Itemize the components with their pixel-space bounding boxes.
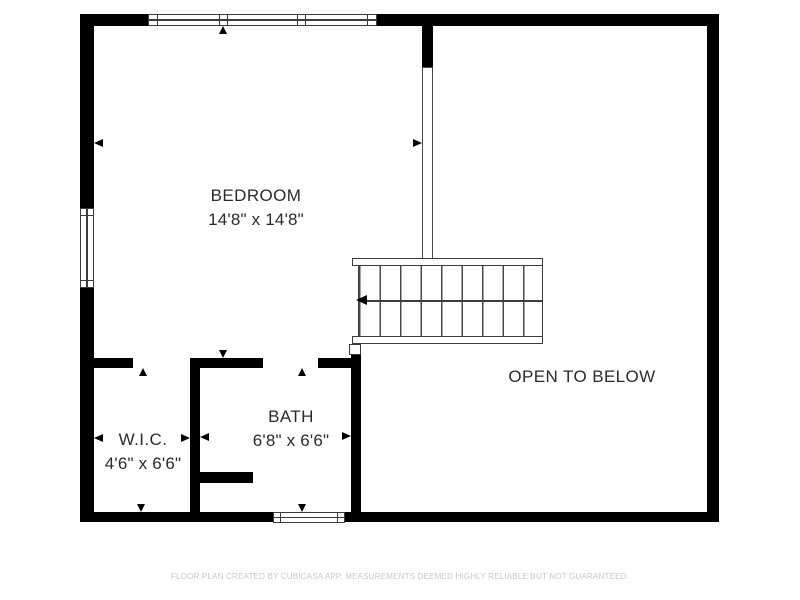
- wall-bath-stub: [200, 472, 253, 483]
- room-label-open-to-below: OPEN TO BELOW: [508, 365, 655, 389]
- window-frame-line: [280, 513, 281, 522]
- wall-bath-top-left: [190, 358, 263, 368]
- window-left: [80, 208, 94, 288]
- stair-railing: [422, 67, 433, 259]
- window-frame-line: [81, 280, 93, 281]
- wic-dim-arrow-bottom-icon: [137, 504, 145, 512]
- floor-plan: BEDROOM 14'8" x 14'8" W.I.C. 4'6" x 6'6"…: [0, 0, 800, 600]
- room-label-wic: W.I.C. 4'6" x 6'6": [105, 428, 182, 476]
- wall-left-upper-segment: [80, 14, 94, 208]
- wall-right: [707, 14, 719, 522]
- bedroom-dim-arrow-top-icon: [219, 26, 227, 34]
- room-label-bath: BATH 6'8" x 6'6": [253, 405, 330, 453]
- window-frame-line: [227, 15, 228, 25]
- wic-dimensions: 4'6" x 6'6": [105, 452, 182, 476]
- bedroom-dim-arrow-right-icon: [413, 139, 422, 147]
- stair-direction-arrow-icon: [356, 295, 367, 305]
- window-frame-line: [367, 15, 368, 25]
- bath-dim-arrow-right-icon: [342, 432, 351, 440]
- wall-bottom-right-segment: [345, 512, 719, 522]
- bedroom-dim-arrow-bottom-icon: [219, 350, 227, 358]
- footer-disclaimer: FLOOR PLAN CREATED BY CUBICASA APP. MEAS…: [0, 572, 800, 581]
- window-frame-line: [337, 513, 338, 522]
- window-glass-line: [149, 19, 376, 20]
- bath-dim-arrow-top-icon: [298, 368, 306, 376]
- window-bottom: [273, 512, 345, 523]
- stair-step-corner: [349, 344, 361, 355]
- wall-bath-right: [351, 353, 361, 512]
- wic-dim-arrow-top-icon: [139, 368, 147, 376]
- wic-name: W.I.C.: [105, 428, 182, 452]
- open-to-below-name: OPEN TO BELOW: [508, 365, 655, 389]
- bedroom-dimensions: 14'8" x 14'8": [208, 208, 304, 232]
- bath-dimensions: 6'8" x 6'6": [253, 429, 330, 453]
- wall-top-right-segment: [377, 14, 719, 26]
- wall-wic-top: [94, 358, 133, 368]
- window-frame-line: [297, 15, 298, 25]
- window-glass-line: [274, 517, 344, 518]
- bedroom-dim-arrow-left-icon: [94, 139, 103, 147]
- stair-bottom-landing: [352, 336, 543, 344]
- wall-left-lower-segment: [80, 288, 94, 522]
- wall-bottom-left-segment: [80, 512, 273, 522]
- bath-name: BATH: [253, 405, 330, 429]
- wall-bath-top-right: [318, 358, 361, 368]
- wall-wic-bath-divider: [190, 358, 200, 512]
- window-glass-line: [86, 209, 87, 287]
- bedroom-name: BEDROOM: [208, 184, 304, 208]
- window-frame-line: [81, 215, 93, 216]
- wic-dim-arrow-left-icon: [94, 434, 103, 442]
- bath-dim-arrow-bottom-icon: [298, 504, 306, 512]
- window-frame-line: [305, 15, 306, 25]
- stair-direction-line: [360, 300, 543, 302]
- bath-dim-arrow-left-icon: [200, 433, 209, 441]
- room-label-bedroom: BEDROOM 14'8" x 14'8": [208, 184, 304, 232]
- wic-dim-arrow-right-icon: [181, 434, 190, 442]
- window-frame-line: [219, 15, 220, 25]
- window-top: [148, 14, 377, 26]
- window-frame-line: [157, 15, 158, 25]
- stair-top-landing: [352, 258, 543, 266]
- wall-stair-divider-stub: [422, 26, 433, 67]
